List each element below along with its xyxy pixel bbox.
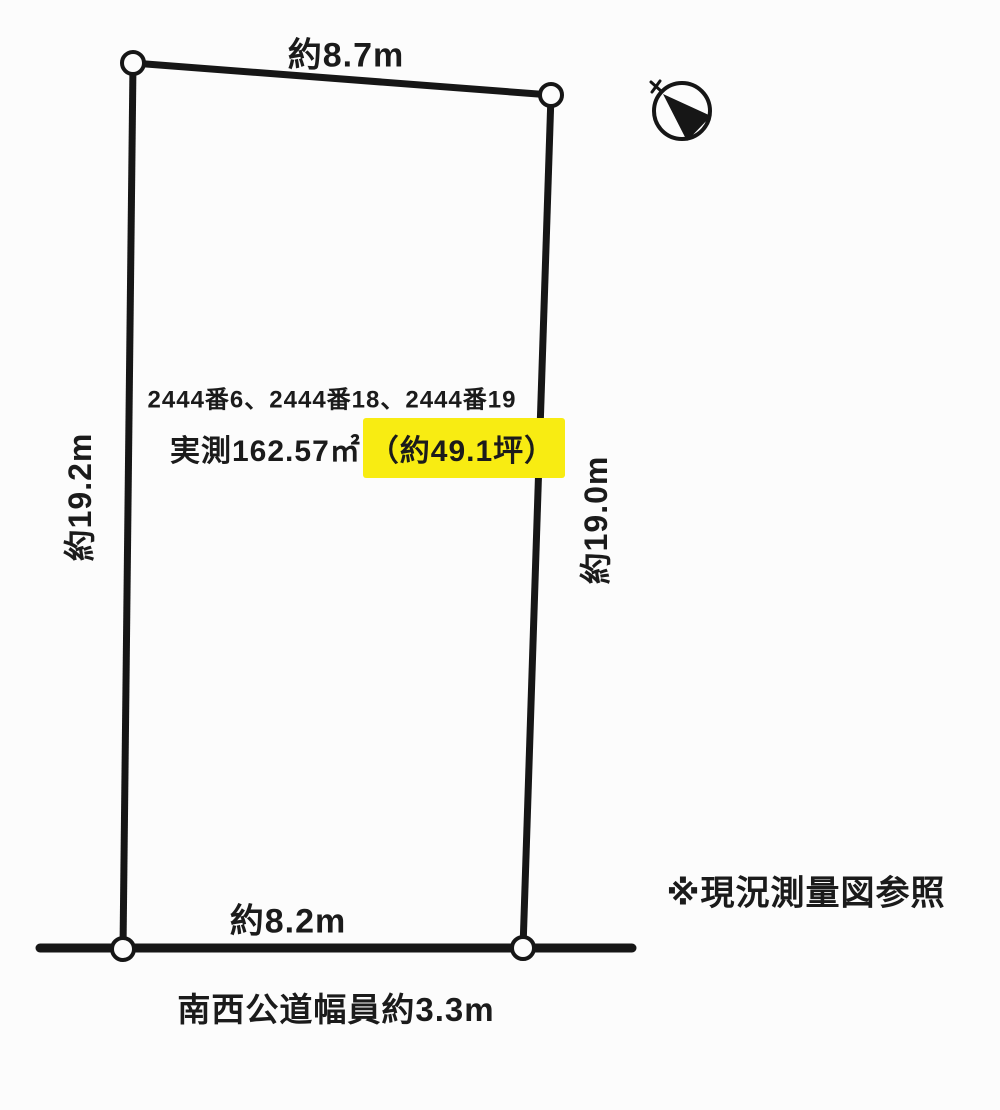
corner-marker-top-right	[540, 84, 562, 106]
area-text: 実測162.57㎡ （約49.1坪）	[170, 418, 565, 478]
north-compass-icon	[651, 81, 711, 141]
area-measured: 実測162.57㎡	[170, 426, 361, 470]
plot-edge-bottom	[123, 948, 523, 949]
corner-marker-bottom-right	[512, 937, 534, 959]
road-width-label: 南西公道幅員約3.3m	[177, 983, 494, 1031]
corner-marker-top-left	[122, 52, 144, 74]
dimension-bottom: 約8.2m	[230, 894, 347, 943]
dimension-right: 約19.0m	[571, 456, 617, 585]
dimension-top: 約8.7m	[288, 28, 405, 77]
land-survey-diagram: 約8.7m 約8.2m 約19.2m 約19.0m 2444番6、2444番18…	[0, 0, 1000, 1110]
plot-edge-right	[523, 95, 551, 948]
corner-marker-bottom-left	[112, 938, 134, 960]
dimension-left: 約19.2m	[55, 433, 101, 562]
tsubo-highlight: （約49.1坪）	[363, 418, 565, 478]
plot-outline-drawing	[0, 0, 1000, 1110]
plot-edge-left	[123, 63, 133, 949]
survey-note: ※現況測量図参照	[666, 866, 945, 915]
parcel-numbers: 2444番6、2444番18、2444番19	[148, 380, 517, 415]
